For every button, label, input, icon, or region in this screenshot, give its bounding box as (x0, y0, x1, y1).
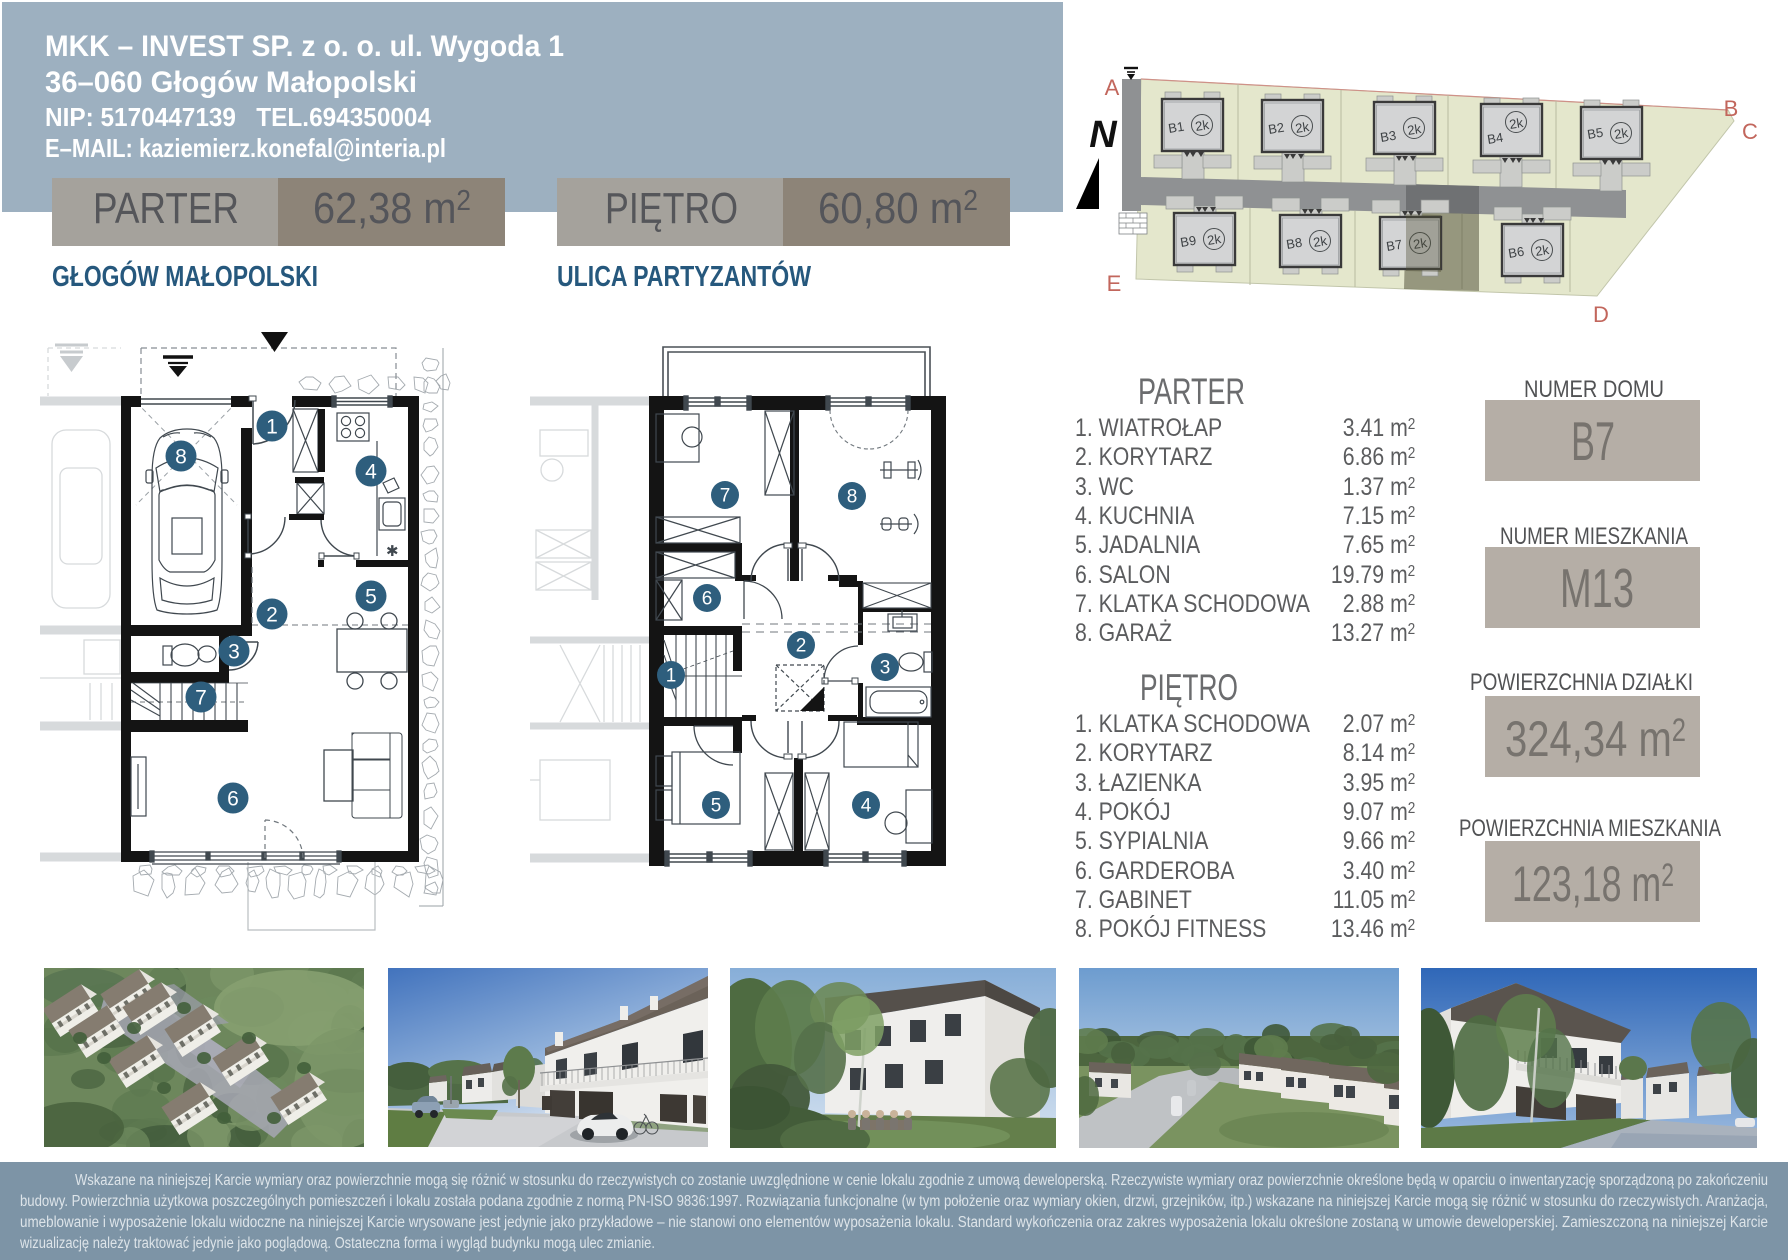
svg-text:B3: B3 (1379, 128, 1397, 145)
svg-text:C: C (1742, 119, 1758, 144)
svg-text:B7: B7 (1385, 237, 1403, 254)
svg-text:4: 4 (365, 461, 377, 484)
svg-text:B1: B1 (1167, 119, 1185, 136)
svg-text:5: 5 (711, 796, 722, 817)
svg-text:2k: 2k (1534, 242, 1550, 259)
svg-text:B8: B8 (1285, 235, 1303, 252)
svg-text:4: 4 (861, 796, 872, 817)
svg-text:6: 6 (702, 589, 713, 610)
svg-text:2k: 2k (1194, 117, 1210, 134)
svg-text:B5: B5 (1586, 125, 1604, 142)
svg-text:2k: 2k (1294, 119, 1310, 136)
svg-text:2k: 2k (1206, 231, 1222, 248)
svg-text:2k: 2k (1508, 115, 1524, 132)
svg-text:2: 2 (266, 604, 278, 627)
svg-text:A: A (1105, 75, 1120, 100)
svg-text:B: B (1724, 96, 1739, 121)
svg-text:2k: 2k (1312, 233, 1328, 250)
svg-text:B9: B9 (1179, 233, 1197, 250)
svg-text:2: 2 (796, 636, 807, 657)
svg-text:B4: B4 (1486, 130, 1504, 147)
svg-text:3: 3 (228, 641, 240, 664)
svg-text:D: D (1593, 302, 1609, 327)
svg-text:7: 7 (195, 687, 207, 710)
svg-text:6: 6 (227, 788, 239, 811)
svg-text:1: 1 (666, 666, 677, 687)
svg-text:1: 1 (266, 416, 278, 439)
svg-text:✱: ✱ (386, 543, 399, 560)
svg-text:2k: 2k (1406, 121, 1422, 138)
svg-text:8: 8 (847, 487, 858, 508)
svg-text:8: 8 (175, 446, 187, 469)
svg-text:7: 7 (720, 486, 731, 507)
svg-text:5: 5 (365, 586, 377, 609)
svg-text:B6: B6 (1507, 244, 1525, 261)
svg-text:B2: B2 (1267, 120, 1285, 137)
svg-text:2k: 2k (1613, 125, 1629, 142)
svg-text:N: N (1089, 114, 1118, 156)
svg-text:3: 3 (880, 658, 891, 679)
svg-text:E: E (1107, 271, 1122, 296)
